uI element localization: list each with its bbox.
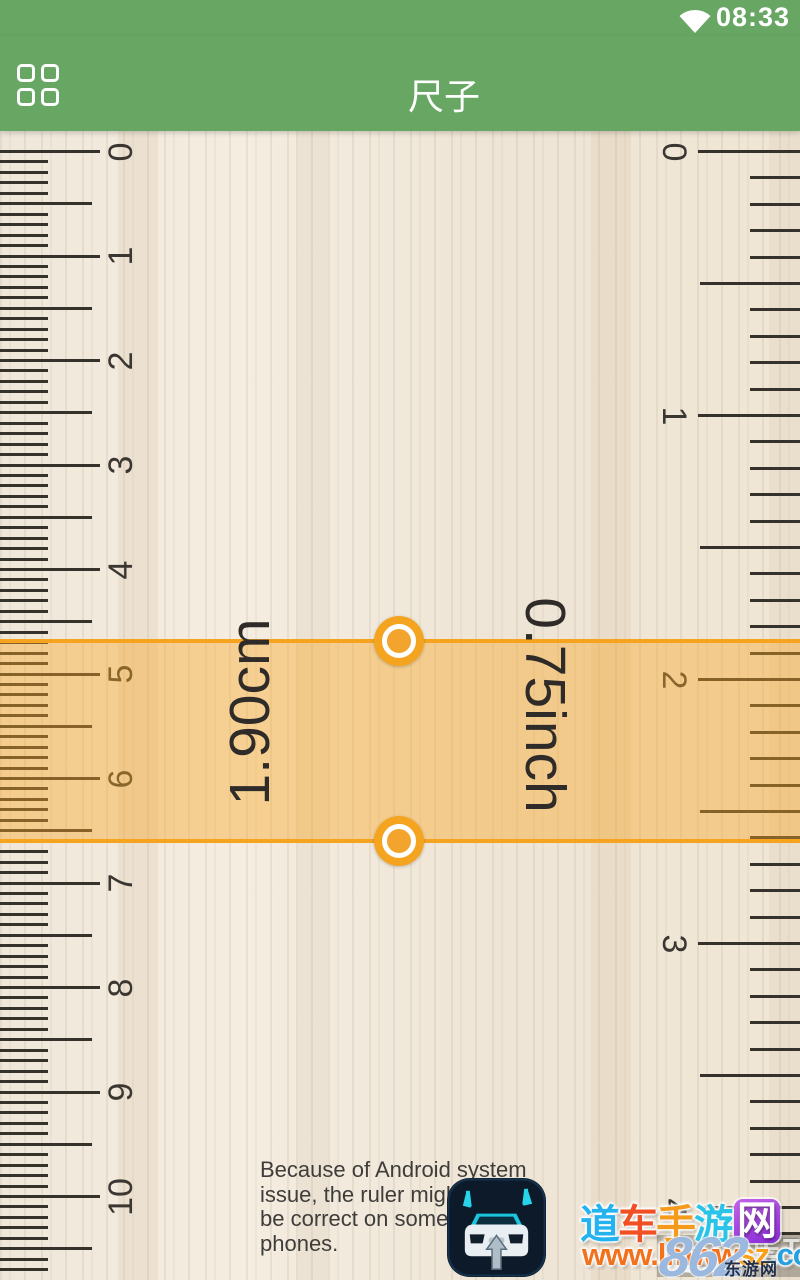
wifi-icon [678, 7, 712, 34]
inch-number-1: 1 [654, 386, 694, 446]
cm-tick [0, 244, 48, 247]
measurement-band[interactable] [0, 639, 800, 843]
cm-tick [0, 902, 48, 905]
measurement-inch-label: 0.75inch [514, 545, 576, 865]
cm-tick [0, 349, 48, 352]
status-bar: 08:33 [0, 0, 800, 36]
cm-tick [0, 871, 48, 874]
inch-tick [750, 863, 800, 866]
cm-tick [0, 484, 48, 487]
cm-tick [0, 255, 100, 258]
inch-tick [750, 916, 800, 919]
ruler-app-screen: 08:33 尺子 012345678910 01234 1.90cm 0.75i… [0, 0, 800, 1280]
inch-tick [750, 256, 800, 259]
inch-tick [750, 995, 800, 998]
cm-tick [0, 307, 92, 310]
cm-tick [0, 526, 48, 529]
cm-tick [0, 1070, 48, 1073]
cm-tick [0, 474, 48, 477]
cm-tick [0, 599, 48, 602]
cm-tick [0, 1237, 48, 1240]
ruler-area: 012345678910 01234 1.90cm 0.75inch Becau… [0, 131, 800, 1280]
watermark-char: 车 [618, 1192, 656, 1250]
cm-tick [0, 171, 48, 174]
cm-number-7: 7 [101, 853, 141, 913]
handle-ring [382, 624, 416, 658]
cm-tick [0, 181, 48, 184]
cm-tick [0, 150, 100, 153]
cm-tick [0, 380, 48, 383]
inch-tick [700, 1074, 800, 1077]
cm-tick [0, 1091, 100, 1094]
cm-tick [0, 620, 92, 623]
car-app-icon [447, 1178, 546, 1277]
cm-tick [0, 223, 48, 226]
cm-tick [0, 589, 48, 592]
cm-tick [0, 882, 100, 885]
cm-tick [0, 537, 48, 540]
inch-number-3: 3 [654, 914, 694, 974]
inch-tick [750, 1180, 800, 1183]
handle-ring [382, 824, 416, 858]
cm-tick [0, 1007, 48, 1010]
cm-tick [0, 965, 48, 968]
cm-tick [0, 411, 92, 414]
cm-tick [0, 464, 100, 467]
cm-tick [0, 453, 48, 456]
cm-number-1: 1 [101, 226, 141, 286]
inch-tick [750, 361, 800, 364]
cm-tick [0, 401, 48, 404]
cm-tick [0, 317, 48, 320]
cm-tick [0, 1038, 92, 1041]
inch-tick [750, 203, 800, 206]
inch-tick [750, 968, 800, 971]
cm-tick [0, 986, 100, 989]
cm-tick [0, 568, 100, 571]
cm-tick [0, 1216, 48, 1219]
cm-tick [0, 1049, 48, 1052]
cm-tick [0, 160, 48, 163]
cm-tick [0, 955, 48, 958]
inch-tick [750, 493, 800, 496]
inch-tick [750, 440, 800, 443]
inch-tick [750, 520, 800, 523]
cm-tick [0, 213, 48, 216]
cm-tick [0, 976, 48, 979]
cm-tick [0, 359, 100, 362]
cm-tick [0, 1226, 48, 1229]
inch-tick [750, 1048, 800, 1051]
inch-tick [698, 150, 800, 153]
inch-tick [700, 282, 800, 285]
inch-tick [750, 599, 800, 602]
cm-tick [0, 913, 48, 916]
cm-tick [0, 1101, 48, 1104]
cm-tick [0, 422, 48, 425]
cm-tick [0, 338, 48, 341]
cm-tick [0, 192, 48, 195]
cm-tick [0, 443, 48, 446]
inch-tick [750, 572, 800, 575]
cm-tick [0, 1132, 48, 1135]
app-header: 尺子 [0, 36, 800, 131]
cm-tick [0, 547, 48, 550]
cm-tick [0, 505, 48, 508]
cm-tick [0, 1205, 48, 1208]
status-time: 08:33 [716, 2, 790, 33]
cm-number-0: 0 [101, 131, 141, 182]
cm-tick [0, 1111, 48, 1114]
cm-tick [0, 578, 48, 581]
cm-number-4: 4 [101, 540, 141, 600]
cm-tick [0, 850, 48, 853]
measurement-cm-label: 1.90cm [219, 562, 281, 862]
cm-number-2: 2 [101, 331, 141, 391]
cm-tick [0, 1028, 48, 1031]
cm-tick [0, 892, 48, 895]
watermark-site-small: 东游网 [724, 1255, 778, 1280]
watermark-char: 道 [580, 1192, 618, 1250]
cm-tick [0, 558, 48, 561]
cm-tick [0, 1247, 92, 1250]
cm-tick [0, 1059, 48, 1062]
cm-tick [0, 296, 48, 299]
inch-tick [750, 1127, 800, 1130]
cm-tick [0, 516, 92, 519]
cm-tick [0, 1017, 48, 1020]
cm-tick [0, 631, 48, 634]
inch-tick [750, 229, 800, 232]
cm-tick [0, 610, 48, 613]
cm-tick [0, 234, 48, 237]
inch-tick [750, 467, 800, 470]
cm-number-9: 9 [101, 1062, 141, 1122]
page-title: 尺子 [0, 68, 800, 120]
inch-tick [700, 546, 800, 549]
inch-number-0: 0 [654, 131, 694, 182]
cm-tick [0, 286, 48, 289]
inch-tick [698, 414, 800, 417]
inch-tick [750, 388, 800, 391]
cm-tick [0, 1080, 48, 1083]
inch-tick [750, 889, 800, 892]
cm-tick [0, 1153, 48, 1156]
inch-tick [750, 335, 800, 338]
inch-tick [750, 625, 800, 628]
cm-number-10: 10 [101, 1167, 141, 1227]
cm-tick [0, 923, 48, 926]
cm-number-3: 3 [101, 435, 141, 495]
cm-number-8: 8 [101, 958, 141, 1018]
inch-tick [698, 942, 800, 945]
cm-tick [0, 944, 48, 947]
cm-tick [0, 328, 48, 331]
inch-tick [750, 1021, 800, 1024]
inch-tick [750, 1100, 800, 1103]
cm-tick [0, 275, 48, 278]
measure-handle-top[interactable] [374, 616, 424, 666]
cm-tick [0, 1143, 92, 1146]
cm-tick [0, 369, 48, 372]
cm-tick [0, 1185, 48, 1188]
cm-tick [0, 1122, 48, 1125]
inch-tick [750, 1153, 800, 1156]
inch-tick [750, 176, 800, 179]
cm-tick [0, 1174, 48, 1177]
cm-tick [0, 861, 48, 864]
measure-handle-bottom[interactable] [374, 816, 424, 866]
cm-tick [0, 202, 92, 205]
cm-tick [0, 265, 48, 268]
cm-tick [0, 495, 48, 498]
cm-tick [0, 1258, 48, 1261]
cm-tick [0, 934, 92, 937]
cm-tick [0, 996, 48, 999]
cm-tick [0, 1164, 48, 1167]
cm-tick [0, 432, 48, 435]
cm-tick [0, 1195, 100, 1198]
cm-tick [0, 1268, 48, 1271]
cm-tick [0, 390, 48, 393]
inch-tick [750, 308, 800, 311]
